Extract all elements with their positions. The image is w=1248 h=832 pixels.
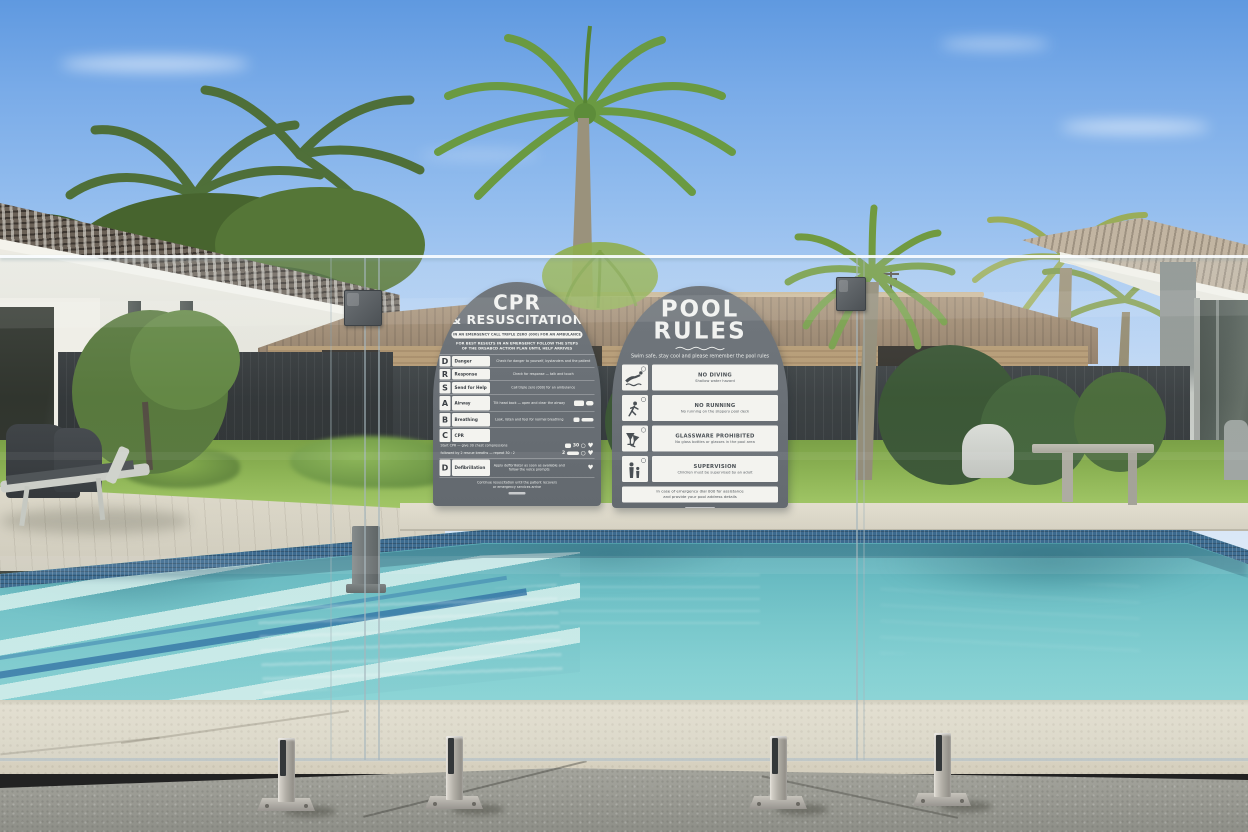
breathing-pictogram-icon — [567, 413, 595, 427]
glass-reflection — [0, 452, 1248, 460]
supervision-icon — [622, 456, 648, 482]
pool-rules-list: NO DIVING Shallow water hazard — [622, 365, 778, 483]
glass-panel-bottom-edge — [0, 758, 1248, 761]
table-row: D Defibrillation Apply defibrillator as … — [440, 458, 595, 477]
glass-panel-joint — [856, 258, 858, 760]
compressions-pictogram-icon: 30 ♥ — [565, 442, 594, 449]
pool-rules-logo — [685, 507, 715, 508]
airway-pictogram-icon — [567, 396, 595, 411]
glass-panel-joint — [364, 258, 366, 760]
pool-rules-title-2: RULES — [612, 320, 788, 342]
wave-divider-icon — [675, 346, 725, 351]
table-row: B Breathing Look, listen and feel for no… — [440, 412, 595, 428]
cpr-sign-intro: FOR BEST RESULTS IN AN EMERGENCY FOLLOW … — [433, 341, 601, 351]
cpr-sign-logo — [509, 492, 526, 495]
no-running-icon — [622, 395, 648, 421]
backyard-pool-scene: CPR & RESUSCITATION IN AN EMERGENCY CALL… — [0, 0, 1248, 832]
no-diving-icon — [622, 365, 648, 391]
rule-row: NO RUNNING No running on the slippery po… — [622, 395, 778, 421]
glass-panel-top-edge — [0, 255, 1248, 258]
heart-icon: ♥ — [588, 442, 594, 449]
no-glassware-icon — [622, 426, 648, 452]
prohibition-ring-icon — [641, 397, 646, 402]
foreground-concrete — [0, 764, 1248, 832]
prohibition-ring-icon — [641, 428, 646, 433]
pool-rules-footer: In case of emergency dial 000 for assist… — [622, 487, 778, 503]
glass-clamp — [836, 277, 866, 311]
rule-row: NO DIVING Shallow water hazard — [622, 365, 778, 391]
glass-panel-joint — [378, 258, 380, 760]
rule-row: SUPERVISION Children must be supervised … — [622, 456, 778, 482]
defibrillator-heart-icon: ♥ — [567, 459, 595, 476]
pool-rules-subtitle: Swim safe, stay cool and please remember… — [625, 354, 775, 360]
glass-panel-joint — [863, 258, 865, 760]
glass-panel-joint — [330, 258, 332, 760]
glass-clamp — [344, 290, 382, 326]
cpr-sign-footer: Continue resuscitation until the patient… — [433, 480, 601, 489]
table-row: A Airway Tilt head back — open and clear… — [440, 395, 595, 412]
prohibition-ring-icon — [641, 367, 646, 372]
cpr-sign-banner: IN AN EMERGENCY CALL TRIPLE ZERO (000) F… — [452, 331, 583, 339]
table-row: R Response Check for response — talk and… — [440, 368, 595, 381]
glass-reflection — [0, 556, 1248, 574]
table-row: D Danger Check for danger to yourself, b… — [440, 355, 595, 368]
table-row: S Send for Help Call triple zero (000) f… — [440, 381, 595, 395]
rule-row: GLASSWARE PROHIBITED No glass bottles or… — [622, 426, 778, 452]
